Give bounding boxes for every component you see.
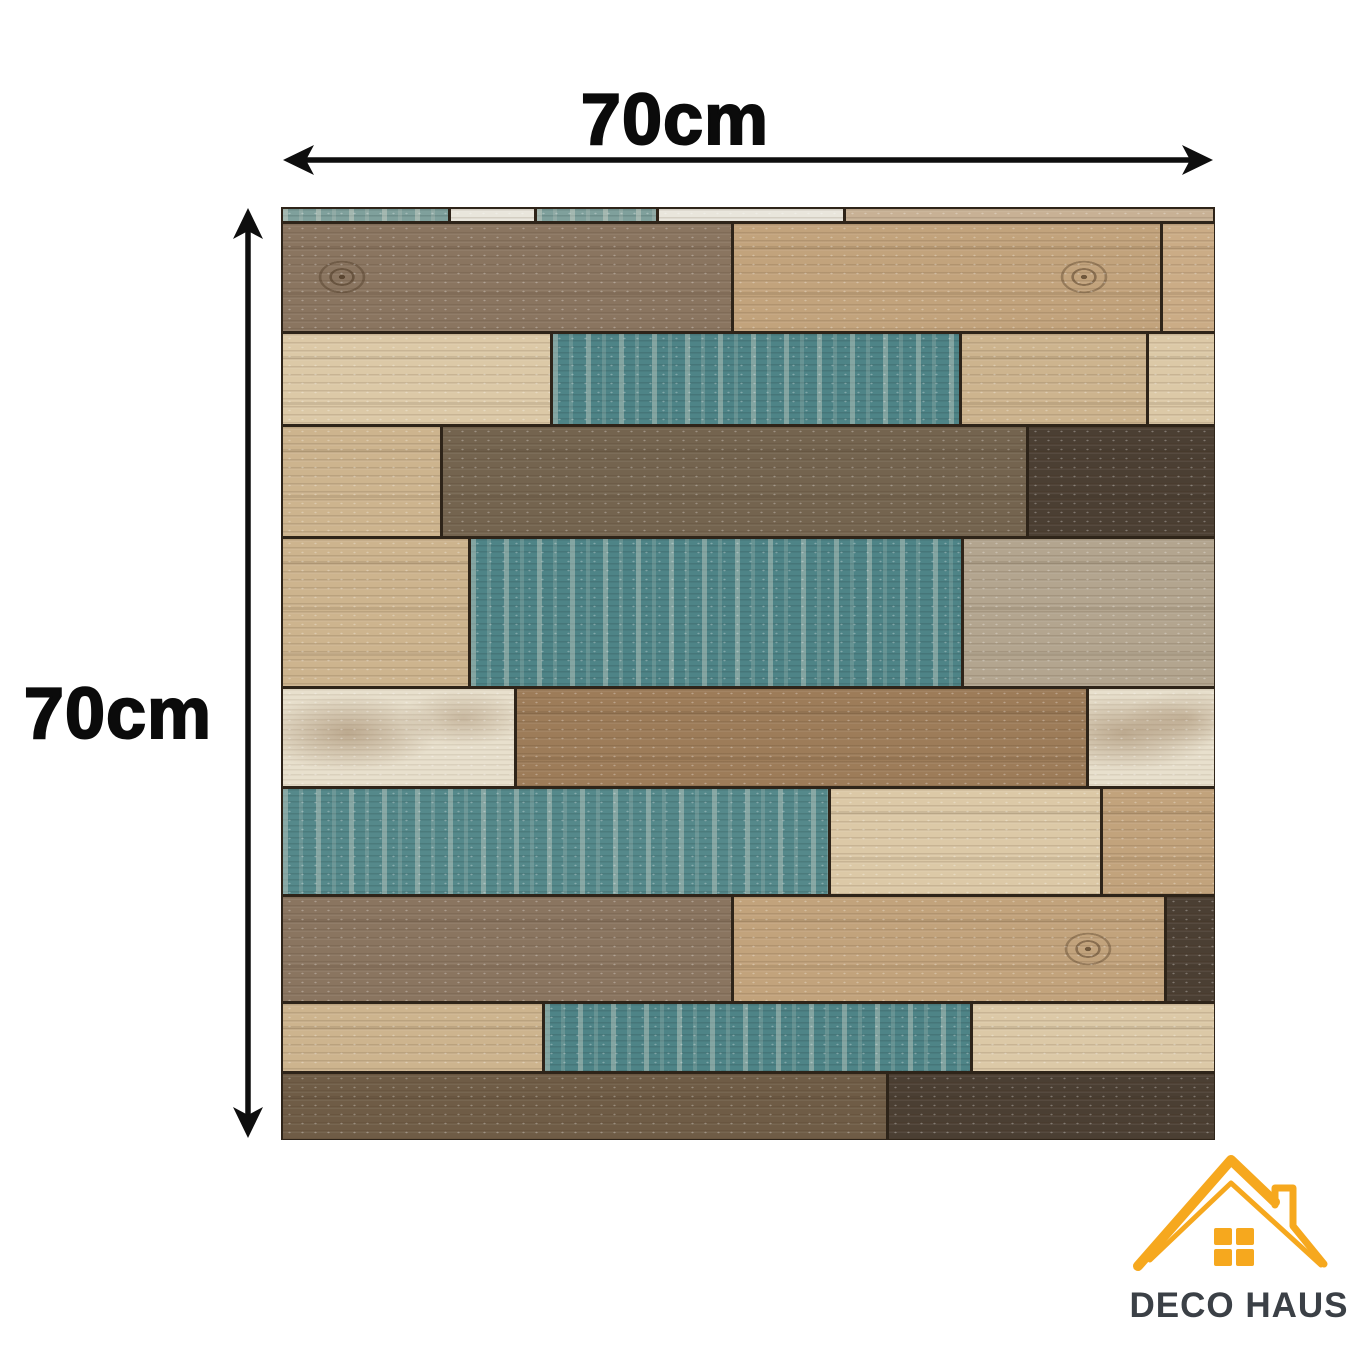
wood-plank <box>283 427 440 536</box>
plank-row <box>281 1002 1215 1072</box>
plank-row <box>281 332 1215 425</box>
wood-plank <box>443 427 1026 536</box>
wood-plank <box>283 897 732 1001</box>
wood-plank <box>973 1004 1214 1071</box>
wood-plank <box>283 334 550 424</box>
height-dimension-arrow <box>230 206 266 1140</box>
wood-knot <box>309 254 375 300</box>
wood-plank <box>471 539 961 686</box>
wood-plank <box>962 334 1146 424</box>
product-dimension-diagram: 70cm 70cm DECO HAUS <box>0 0 1350 1350</box>
plank-row <box>281 425 1215 537</box>
brand-name: DECO HAUS <box>1128 1287 1350 1326</box>
wood-plank <box>545 1004 971 1071</box>
plank-row <box>281 895 1215 1002</box>
wood-plank <box>1089 689 1214 786</box>
wood-plank <box>283 224 732 331</box>
wood-plank <box>283 539 468 686</box>
wood-plank <box>734 224 1160 331</box>
width-dimension-arrow <box>281 142 1215 178</box>
wood-plank <box>1167 897 1213 1001</box>
wood-plank <box>537 209 656 221</box>
wood-plank <box>659 209 843 221</box>
wood-plank <box>831 789 1099 894</box>
wood-panel-product-photo <box>281 207 1215 1140</box>
wood-plank <box>964 539 1214 686</box>
wood-plank <box>1149 334 1214 424</box>
plank-row <box>281 1072 1215 1140</box>
plank-row <box>281 787 1215 895</box>
house-icon <box>1128 1138 1350 1286</box>
wood-plank <box>889 1074 1214 1139</box>
wood-plank <box>734 897 1164 1001</box>
window-icon <box>1214 1228 1254 1266</box>
wood-plank <box>517 689 1086 786</box>
wood-plank <box>451 209 534 221</box>
height-dimension-label: 70cm <box>14 678 222 750</box>
wood-plank <box>1029 427 1214 536</box>
plank-row <box>281 687 1215 787</box>
wood-knot <box>1055 926 1121 972</box>
plank-row <box>281 222 1215 332</box>
wood-plank <box>1103 789 1214 894</box>
wood-plank <box>846 209 1214 221</box>
plank-row <box>281 207 1215 222</box>
wood-plank <box>283 689 514 786</box>
wood-knot <box>1051 254 1117 300</box>
wood-plank <box>283 1004 542 1071</box>
wood-plank <box>1163 224 1214 331</box>
plank-row <box>281 537 1215 687</box>
wood-plank <box>283 209 448 221</box>
wood-plank <box>283 1074 886 1139</box>
brand-logo: DECO HAUS <box>1128 1138 1350 1338</box>
wood-plank <box>553 334 959 424</box>
wood-plank <box>283 789 829 894</box>
